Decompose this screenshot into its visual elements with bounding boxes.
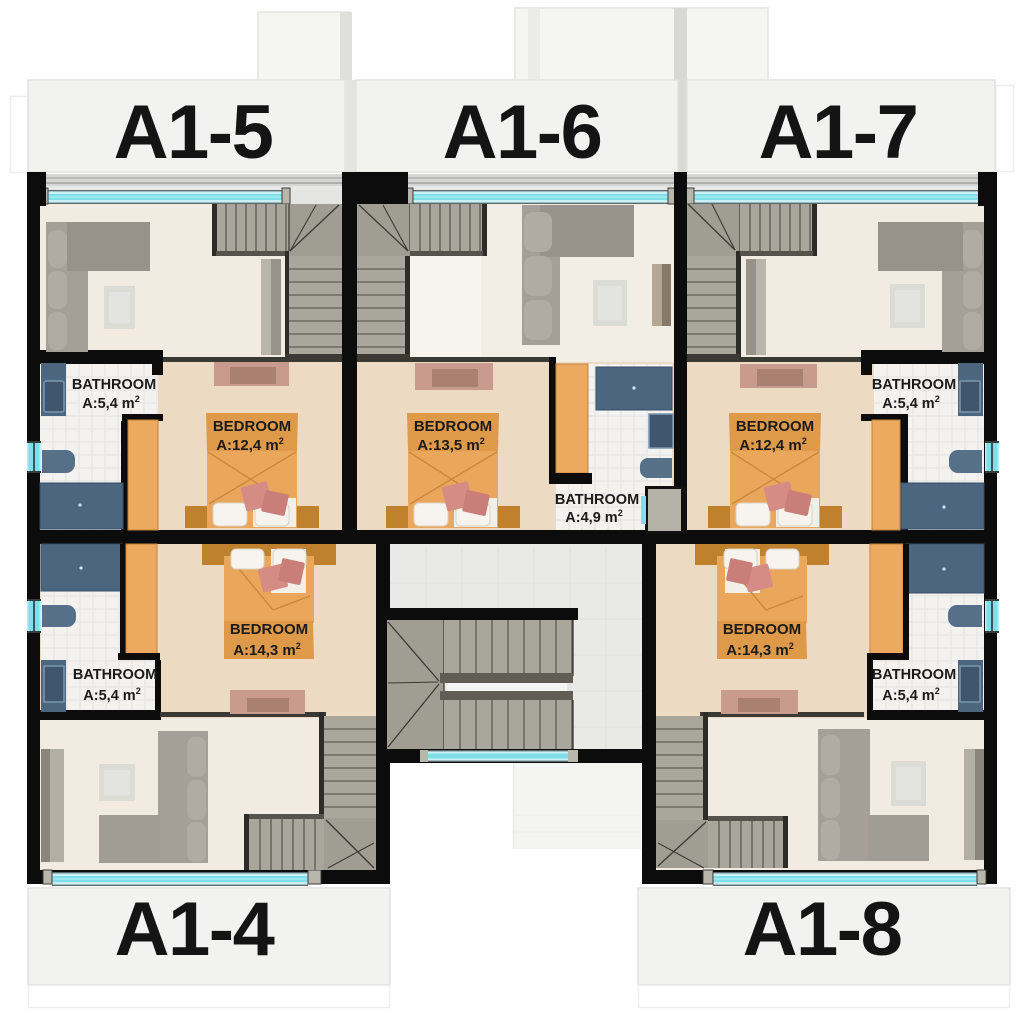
svg-text:BEDROOM: BEDROOM [414, 418, 492, 435]
svg-text:BATHROOM: BATHROOM [872, 667, 956, 683]
svg-text:A:13,5 m2: A:13,5 m2 [417, 436, 485, 454]
svg-text:A:14,3 m2: A:14,3 m2 [233, 641, 301, 659]
svg-text:BATHROOM: BATHROOM [872, 377, 956, 393]
svg-text:A1-5: A1-5 [114, 90, 273, 175]
svg-text:A1-8: A1-8 [743, 887, 902, 972]
svg-text:A:5,4 m2: A:5,4 m2 [882, 686, 939, 704]
svg-text:A:5,4 m2: A:5,4 m2 [83, 686, 140, 704]
svg-text:A:5,4 m2: A:5,4 m2 [882, 394, 939, 412]
svg-text:A:12,4 m2: A:12,4 m2 [216, 436, 284, 454]
svg-text:BEDROOM: BEDROOM [230, 621, 308, 638]
svg-text:A1-6: A1-6 [443, 90, 602, 175]
svg-text:BATHROOM: BATHROOM [555, 492, 639, 508]
svg-text:A1-7: A1-7 [759, 90, 918, 175]
svg-text:A:5,4 m2: A:5,4 m2 [82, 394, 139, 412]
svg-text:A:12,4 m2: A:12,4 m2 [739, 436, 807, 454]
svg-text:BEDROOM: BEDROOM [723, 621, 801, 638]
svg-text:BEDROOM: BEDROOM [213, 418, 291, 435]
svg-text:A1-4: A1-4 [115, 887, 275, 972]
svg-text:BEDROOM: BEDROOM [736, 418, 814, 435]
svg-text:A:4,9 m2: A:4,9 m2 [565, 508, 622, 526]
svg-text:BATHROOM: BATHROOM [73, 667, 157, 683]
svg-text:BATHROOM: BATHROOM [72, 377, 156, 393]
svg-text:A:14,3 m2: A:14,3 m2 [726, 641, 794, 659]
